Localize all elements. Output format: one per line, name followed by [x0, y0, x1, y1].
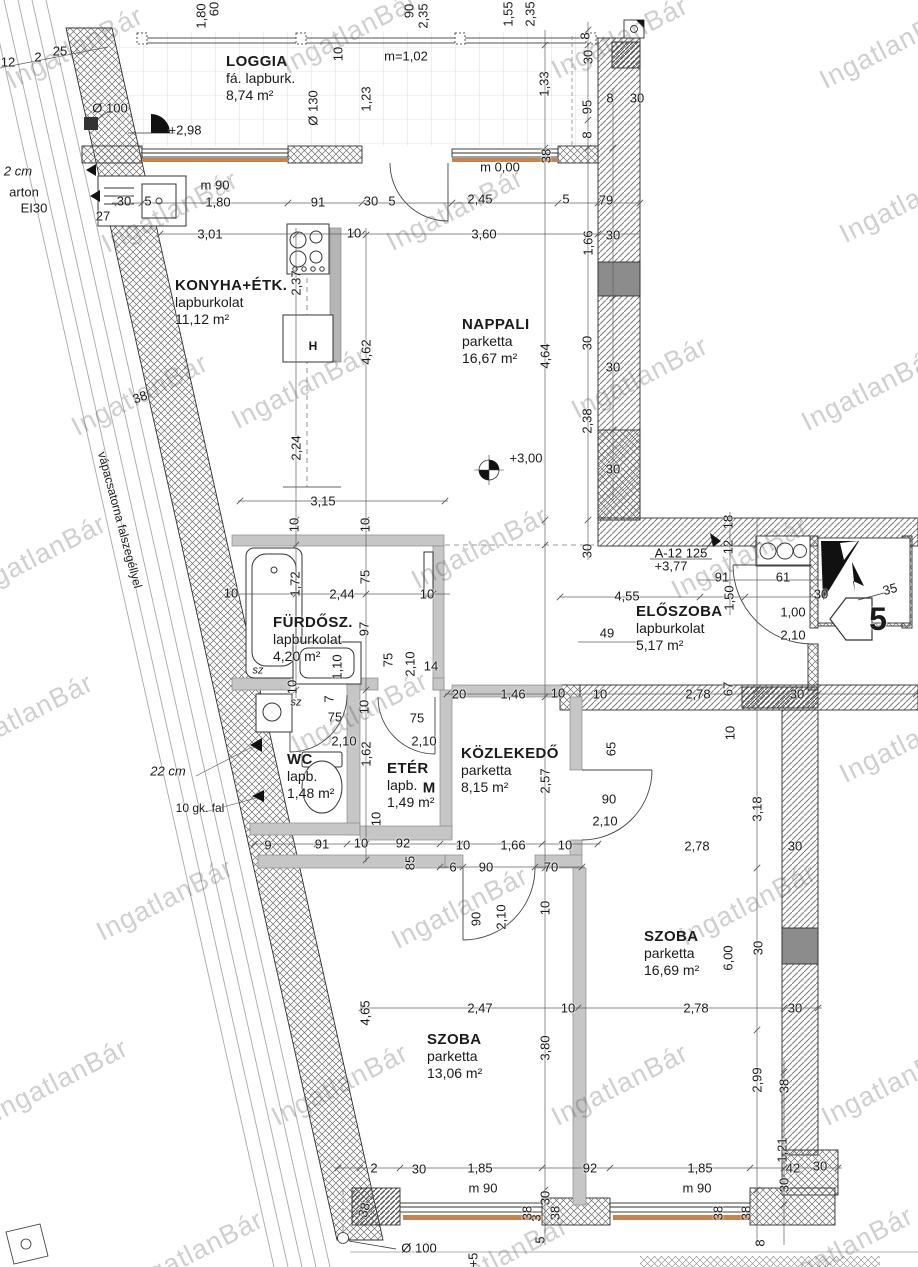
dimension-label: 3,80: [539, 1035, 552, 1060]
dimension-label: Ø 100: [401, 1242, 436, 1255]
dimension-label: 2,10: [404, 651, 417, 676]
dimension-label: 35: [881, 581, 898, 597]
dimension-label: 12: [722, 540, 735, 554]
dimension-label: 90: [602, 793, 616, 806]
dimension-label: 2,24: [290, 435, 303, 460]
dimension-label: 1,50: [723, 585, 736, 610]
dimension-label: 30: [790, 688, 804, 701]
dimension-label: 30: [814, 588, 828, 601]
dimension-label: 3,60: [471, 228, 496, 241]
dimension-label: 90: [470, 912, 483, 926]
dimension-label: 38: [356, 1201, 372, 1218]
room-ra: 16,67 m²: [462, 350, 530, 367]
room-label: NAPPALIparketta16,67 m²: [462, 316, 530, 367]
dimension-label: 10: [358, 700, 371, 714]
dimension-label: 75: [359, 570, 372, 584]
dimension-label: 6,00: [722, 945, 735, 970]
dimension-label: 2,78: [685, 688, 710, 701]
room-ra: 5,17 m²: [636, 637, 723, 654]
room-label: FÜRDŐSZ.lapburkolat4,20 m²: [273, 614, 353, 665]
dimension-label: 60: [208, 2, 221, 16]
dimension-label: 1,85: [687, 1162, 712, 1175]
dimension-label: 1,85: [467, 1162, 492, 1175]
dimension-label: 30: [788, 1002, 802, 1015]
room-label: KONYHA+ÉTK.lapburkolat11,12 m²: [175, 277, 287, 328]
dimension-label: 10: [539, 901, 552, 915]
dimension-label: 2 cm: [4, 165, 32, 178]
dimension-label: 65: [605, 742, 618, 756]
dimension-label: 3,18: [751, 796, 764, 821]
dimension-label: 42: [786, 1162, 800, 1175]
dimension-label: 30: [581, 544, 594, 558]
dimension-label: 10: [551, 687, 565, 700]
dimension-label: 2,99: [751, 1067, 764, 1092]
dimension-label: 10: [370, 812, 383, 826]
room-rn: SZOBA: [427, 1031, 482, 1048]
dimension-label: 9: [264, 839, 271, 852]
dimension-label: 2,38: [581, 408, 594, 433]
dimension-label: 27: [96, 210, 110, 223]
annotation-layer: 1,8060902,351,552,3525212m=1,02101,23Ø 1…: [0, 0, 918, 1267]
dimension-label: 10: [593, 688, 607, 701]
dimension-label: 95: [581, 100, 594, 114]
dimension-label: 10: [224, 587, 238, 600]
dimension-label: 30: [778, 1178, 791, 1192]
dimension-label: 8: [606, 92, 613, 105]
room-ra: 13,06 m²: [427, 1065, 482, 1082]
dimension-label: 30: [581, 336, 594, 350]
dimension-label: 97: [358, 622, 371, 636]
room-rf: lapb.: [287, 768, 334, 785]
dimension-label: 30: [630, 92, 644, 105]
dimension-label: 1,55: [502, 1, 515, 26]
dimension-label: 10: [456, 839, 470, 852]
dimension-label: EI30: [21, 202, 48, 215]
room-label: ETÉRlapb.1,49 m²: [387, 760, 434, 811]
dimension-label: 10: [347, 227, 361, 240]
dimension-label: 22 cm: [150, 765, 185, 778]
dimension-label: 90: [403, 4, 416, 18]
dimension-label: 4,55: [614, 590, 639, 603]
dimension-label: m 90: [201, 179, 230, 192]
room-label: KÖZLEKEDŐparketta8,15 m²: [461, 745, 559, 796]
dimension-label: 8: [754, 1239, 767, 1246]
room-rf: parketta: [427, 1048, 482, 1065]
dimension-label: 4,62: [360, 339, 373, 364]
dimension-label: 38: [712, 1206, 725, 1220]
room-rf: lapburkolat: [273, 631, 353, 648]
dimension-label: 1,46: [500, 688, 525, 701]
dimension-label: 85: [404, 856, 417, 870]
dimension-label: m=1,02: [384, 50, 428, 63]
dimension-label: m 90: [469, 1182, 498, 1195]
dimension-label: 75: [410, 712, 424, 725]
room-rn: KONYHA+ÉTK.: [175, 277, 287, 294]
dimension-label: 10: [420, 588, 434, 601]
dimension-label: 4,65: [359, 1000, 372, 1025]
dimension-label: 30: [752, 941, 765, 955]
dimension-label: 10: [288, 518, 301, 532]
room-ra: 11,12 m²: [175, 311, 287, 328]
dimension-label: 38: [540, 149, 553, 163]
dimension-label: 8: [579, 32, 592, 39]
dimension-label: 30: [813, 1160, 827, 1173]
dimension-label: 10: [558, 839, 572, 852]
dimension-label: 2,10: [411, 735, 436, 748]
dimension-label: 61: [776, 571, 790, 584]
room-rn: ELŐSZOBA: [636, 603, 723, 620]
dimension-label: 3,15: [310, 495, 335, 508]
room-rf: parketta: [644, 945, 699, 962]
dimension-label: +3,00: [510, 452, 543, 465]
dimension-label: 30: [606, 361, 620, 374]
dimension-label: 7: [323, 695, 336, 702]
room-rn: KÖZLEKEDŐ: [461, 745, 559, 762]
dimension-label: 10: [724, 726, 737, 740]
dimension-label: 2,45: [467, 193, 492, 206]
dimension-label: 25: [53, 45, 67, 58]
room-label: WClapb.1,48 m²: [287, 751, 334, 802]
room-rn: WC: [287, 751, 334, 768]
room-label: SZOBAparketta16,69 m²: [644, 928, 699, 979]
dimension-label: 2,10: [331, 735, 356, 748]
dimension-label: 1,00: [780, 606, 805, 619]
dimension-label: 10: [359, 518, 372, 532]
dimension-label: 75: [328, 711, 342, 724]
dimension-label: 10: [286, 680, 299, 694]
wall-note: vápacsatorna falszegéllyel: [96, 450, 144, 589]
room-rf: parketta: [462, 333, 530, 350]
dimension-label: 92: [396, 837, 410, 850]
dimension-label: 2,35: [524, 1, 537, 26]
apartment-number: 5: [869, 603, 887, 635]
dimension-label: +2,98: [169, 124, 202, 137]
dimension-label: 5: [388, 195, 395, 208]
dimension-label: 38: [740, 1206, 753, 1220]
dimension-label: 30: [412, 1163, 426, 1176]
dimension-label: 1,21: [776, 1137, 789, 1162]
dimension-label: 10: [332, 47, 345, 61]
room-label: ELŐSZOBAlapburkolat5,17 m²: [636, 603, 723, 654]
dimension-label: 2,47: [467, 1002, 492, 1015]
dimension-label: 90: [479, 861, 493, 874]
dimension-label: 12: [1, 56, 15, 69]
dimension-label: 1,23: [360, 86, 373, 111]
dimension-label: 70: [544, 861, 558, 874]
dimension-label: 5: [534, 1236, 547, 1243]
dimension-label: 4,64: [539, 343, 552, 368]
dimension-label: 38: [131, 388, 149, 405]
room-ra: 8,15 m²: [461, 779, 559, 796]
room-rf: fá. lapburk.: [226, 70, 295, 87]
dimension-label: 75: [382, 653, 395, 667]
dimension-label: 30: [364, 195, 378, 208]
dimension-label: 1,33: [538, 71, 551, 96]
dimension-label: 5: [144, 195, 151, 208]
dimension-label: arton: [9, 186, 39, 199]
dimension-label: 2: [34, 51, 41, 64]
dimension-label: 91: [315, 838, 329, 851]
dimension-label: sz: [291, 698, 302, 709]
room-ra: 8,74 m²: [226, 87, 295, 104]
room-label: SZOBAparketta13,06 m²: [427, 1031, 482, 1082]
dimension-label: 2,78: [684, 840, 709, 853]
room-rn: LOGGIA: [226, 53, 295, 70]
room-rn: SZOBA: [644, 928, 699, 945]
room-ra: 16,69 m²: [644, 962, 699, 979]
dimension-label: sz: [253, 666, 264, 677]
dimension-label: 92: [583, 1162, 597, 1175]
dimension-label: 6: [449, 861, 456, 874]
dimension-label: 2,37: [290, 270, 303, 295]
dimension-label: 10: [354, 837, 368, 850]
dimension-label: 30: [788, 840, 802, 853]
dimension-label: 1,80: [205, 196, 230, 209]
room-rn: NAPPALI: [462, 316, 530, 333]
dimension-label: 79: [599, 194, 613, 207]
dimension-label: 3,01: [197, 228, 222, 241]
dimension-label: 1,66: [500, 839, 525, 852]
dimension-label: 20: [452, 688, 466, 701]
room-rf: lapburkolat: [175, 294, 287, 311]
dimension-label: 38: [521, 1206, 534, 1220]
dimension-label: Ø 100: [92, 102, 127, 115]
dimension-label: 18: [722, 515, 735, 529]
dimension-label: 2,78: [683, 1002, 708, 1015]
dimension-label: 2,44: [329, 588, 354, 601]
dimension-label: 1,66: [582, 230, 595, 255]
room-label: LOGGIAfá. lapburk.8,74 m²: [226, 53, 295, 104]
dimension-label: 5: [562, 193, 569, 206]
room-ra: 1,49 m²: [387, 794, 434, 811]
dimension-label: Ø 130: [307, 90, 320, 125]
dimension-label: 10: [561, 1002, 575, 1015]
dimension-label: 10 gk. fal: [176, 802, 225, 814]
room-rf: lapburkolat: [636, 620, 723, 637]
dimension-label: 8: [581, 131, 594, 138]
dimension-label: 1,72: [289, 571, 302, 596]
dimension-label: m 0,00: [480, 161, 520, 174]
appliance-h-label: H: [309, 340, 318, 352]
room-ra: 1,48 m²: [287, 785, 334, 802]
dimension-label: 14: [424, 660, 438, 673]
dimension-label: 38: [549, 1206, 562, 1220]
room-rn: FÜRDŐSZ.: [273, 614, 353, 631]
dimension-label: 2: [370, 1162, 377, 1175]
room-rn: ETÉR: [387, 760, 434, 777]
floor-plan: 1,8060902,351,552,3525212m=1,02101,23Ø 1…: [0, 0, 918, 1267]
dimension-label: 2,35: [417, 3, 430, 28]
room-rf: parketta: [461, 762, 559, 779]
dimension-label: 67: [722, 682, 735, 696]
dimension-label: 91: [311, 196, 325, 209]
dimension-label: 30: [606, 229, 620, 242]
dimension-label: m 90: [683, 1182, 712, 1195]
dimension-label: 30: [582, 50, 595, 64]
dimension-label: 91: [715, 571, 729, 584]
dimension-label: 49: [600, 627, 614, 640]
dimension-label: 30: [606, 463, 620, 476]
dimension-label: 1,62: [360, 741, 373, 766]
dimension-label: 38: [778, 1079, 791, 1093]
room-ra: 4,20 m²: [273, 648, 353, 665]
dimension-label: +3,77: [655, 560, 688, 573]
dimension-label: 2,10: [780, 629, 805, 642]
dimension-label: +5: [467, 1253, 480, 1267]
dimension-label: 30: [117, 195, 131, 208]
dimension-label: 30: [539, 1191, 552, 1205]
room-rf: lapb.: [387, 777, 434, 794]
dimension-label: 2,10: [495, 904, 508, 929]
dimension-label: 2,10: [592, 815, 617, 828]
